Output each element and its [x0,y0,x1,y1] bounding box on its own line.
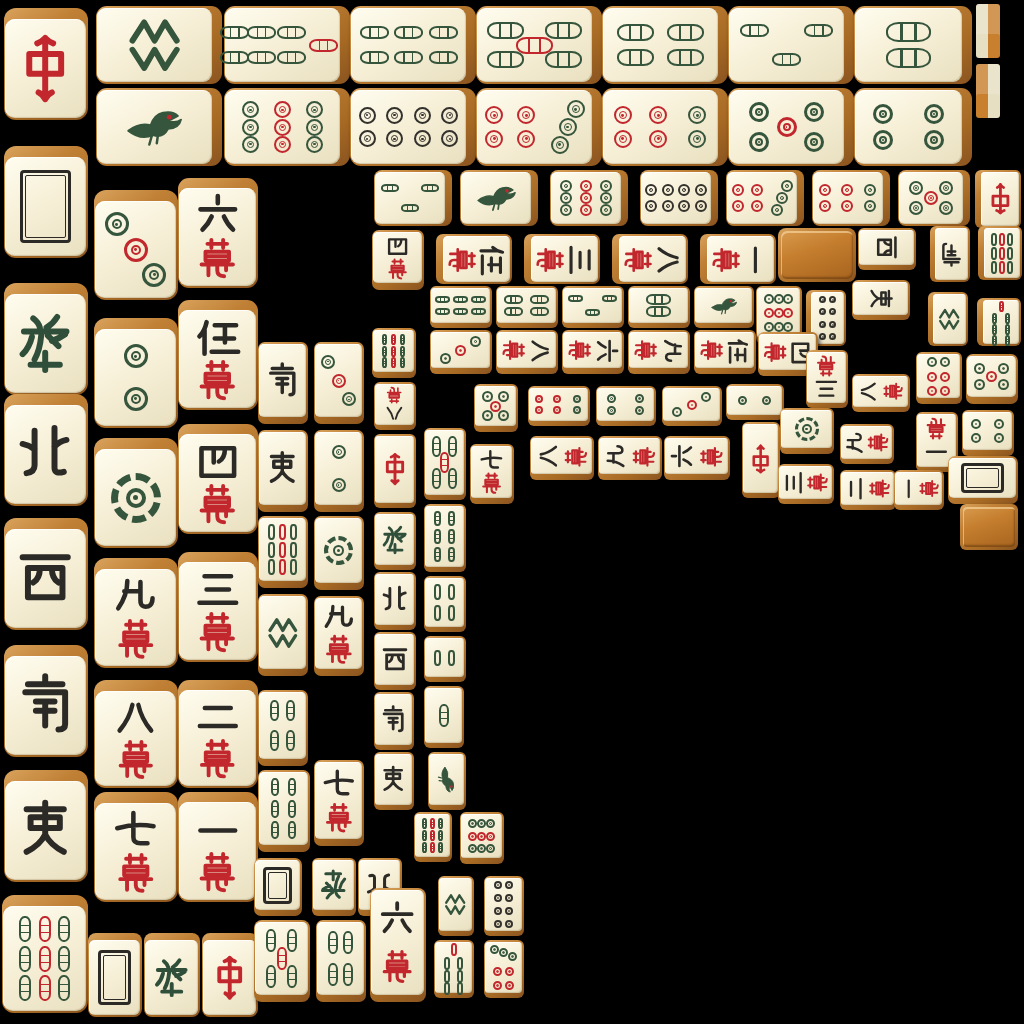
tile-character-8[interactable] [94,680,178,788]
tile-wind-south[interactable] [374,692,414,750]
tile-character-9[interactable] [598,436,662,480]
board [0,0,1024,1024]
tile-dragon-red-zhong[interactable] [374,434,416,508]
tile-bamboo-1-bird[interactable] [428,752,466,810]
tile-dragon-white[interactable] [948,456,1018,504]
tile-character-5[interactable] [436,234,512,284]
tile-character-3[interactable] [524,234,600,284]
tile-dragon-green-fa[interactable] [144,933,200,1017]
tile-bamboo-1-bird[interactable] [96,88,222,166]
tile-bamboo-8[interactable] [928,292,968,346]
tile-character-2[interactable] [178,680,258,788]
tile-dot-8[interactable] [484,876,524,936]
tile-character-8[interactable] [374,382,416,430]
tile-wind-east[interactable] [258,430,308,512]
tile-dot-1[interactable] [780,408,834,454]
tile-character-4[interactable] [178,424,258,534]
tile-dot-5[interactable] [966,354,1018,404]
tile-bamboo-9[interactable] [414,812,452,862]
tile-dot-6[interactable] [812,170,890,226]
tile-dot-3[interactable] [314,342,364,424]
tile-dot-2[interactable] [94,318,178,428]
tile-dot-2[interactable] [314,430,364,512]
tile-dot-7[interactable] [476,88,602,166]
tile-wind-south[interactable] [258,342,308,424]
tile-dot-4[interactable] [596,386,656,426]
tile-edge-strip [976,4,1000,58]
tile-wind-west[interactable] [4,518,88,630]
tile-dragon-green-fa[interactable] [4,283,88,395]
tile-dot-3[interactable] [430,330,492,374]
tile-wind-west[interactable] [374,632,416,690]
tile-dot-3[interactable] [662,386,722,426]
tile-wind-east[interactable] [4,770,88,882]
tile-dragon-green-fa[interactable] [374,512,416,570]
tile-wind-north[interactable] [374,572,416,630]
tile-dragon-red-zhong[interactable] [975,170,1021,228]
tile-dot-6[interactable] [602,88,728,166]
tile-dot-6[interactable] [528,386,590,426]
tile-wind-west[interactable] [858,228,916,270]
tile-dragon-red-zhong[interactable] [4,8,88,120]
tile-dot-2[interactable] [726,384,784,420]
tile-dot-6[interactable] [916,352,962,404]
tile-edge-strip [976,64,1000,118]
tile-dragon-white[interactable] [88,933,142,1017]
tile-bamboo-5[interactable] [476,6,602,84]
tile-character-5[interactable] [178,300,258,410]
tile-bamboo-4[interactable] [496,286,558,328]
tile-character-8[interactable] [852,374,910,412]
tile-wind-north[interactable] [4,394,88,506]
tile-dot-5[interactable] [898,170,970,226]
tile-dot-5[interactable] [474,384,518,432]
tile-character-8[interactable] [496,330,558,374]
tile-dot-7[interactable] [484,940,524,998]
tile-character-1[interactable] [700,234,776,284]
tile-dot-5[interactable] [728,88,854,166]
tile-bamboo-1-bird[interactable] [694,286,754,328]
tile-dot-7[interactable] [726,170,804,226]
tile-bamboo-2[interactable] [854,6,972,84]
tile-character-3[interactable] [178,552,258,662]
tile-character-6[interactable] [370,888,426,1002]
tile-bamboo-6[interactable] [424,504,466,572]
tile-dot-8[interactable] [350,88,476,166]
tile-dragon-red-zhong[interactable] [202,933,258,1017]
tile-bamboo-4[interactable] [258,690,308,766]
tile-character-6[interactable] [664,436,730,480]
tile-bamboo-6[interactable] [258,770,310,852]
tile-bamboo-5[interactable] [254,920,310,1002]
tile-dragon-white[interactable] [4,146,88,258]
tile-bamboo-3[interactable] [728,6,854,84]
tile-character-9[interactable] [628,330,690,374]
tile-character-9[interactable] [94,558,178,668]
tile-character-8[interactable] [612,234,688,284]
tile-bamboo-8[interactable] [96,6,222,84]
tile-bamboo-4[interactable] [424,576,466,632]
tile-character-9[interactable] [314,596,364,676]
tile-bamboo-4[interactable] [602,6,728,84]
tile-wind-south[interactable] [930,226,970,282]
tile-bamboo-6[interactable] [350,6,476,84]
tile-dot-4[interactable] [854,88,972,166]
tile-bamboo-8[interactable] [258,594,308,676]
tile-bamboo-3[interactable] [374,170,452,226]
tile-character-1[interactable] [178,792,258,902]
tile-bamboo-9[interactable] [978,226,1022,280]
tile-character-7[interactable] [314,760,364,846]
tile-dot-4[interactable] [962,410,1014,456]
tile-bamboo-9[interactable] [258,516,308,588]
tile-character-7[interactable] [470,444,514,504]
tile-bamboo-3[interactable] [562,286,624,328]
tile-character-5[interactable] [694,330,756,374]
tile-dot-1[interactable] [314,516,364,590]
tile-bamboo-4[interactable] [316,920,366,1002]
tile-dot-8[interactable] [640,170,718,226]
tile-wind-east[interactable] [852,280,910,320]
tile-dot-9[interactable] [460,812,504,864]
tile-dot-9[interactable] [550,170,628,226]
tile-character-6[interactable] [562,330,624,374]
tile-character-3[interactable] [806,350,848,408]
tile-dot-1[interactable] [94,438,178,548]
tile-bamboo-9[interactable] [2,895,88,1013]
tile-character-3[interactable] [778,464,834,504]
tile-bamboo-1-bird[interactable] [460,170,538,226]
tile-wind-east[interactable] [374,752,414,810]
tile-character-9[interactable] [840,424,894,464]
tile-bamboo-1-stick[interactable] [424,686,464,748]
tile-character-4[interactable] [372,230,424,290]
tile-character-7[interactable] [94,792,178,902]
tile-wind-south[interactable] [4,645,88,757]
tile-dot-9[interactable] [224,88,350,166]
tile-bamboo-2[interactable] [424,636,466,682]
tile-bamboo-5[interactable] [424,428,466,500]
tile-tile-back-face-down[interactable] [778,228,856,282]
tile-dragon-red-zhong[interactable] [742,422,780,498]
tile-character-1[interactable] [894,470,944,510]
tile-dot-3[interactable] [94,190,178,300]
tile-character-2[interactable] [840,470,896,510]
tile-bamboo-9[interactable] [372,328,416,378]
tile-bamboo-8[interactable] [438,876,474,936]
tile-bamboo-7[interactable] [434,940,474,998]
tile-tile-back-face-down[interactable] [960,504,1018,550]
tile-bamboo-7[interactable] [977,298,1021,346]
tile-character-8[interactable] [530,436,594,480]
tile-bamboo-6[interactable] [430,286,492,328]
tile-bamboo-2[interactable] [628,286,690,328]
tile-dragon-green-fa[interactable] [312,858,356,916]
tile-bamboo-7[interactable] [224,6,350,84]
tile-dragon-white[interactable] [254,858,302,916]
tile-character-6[interactable] [178,178,258,288]
